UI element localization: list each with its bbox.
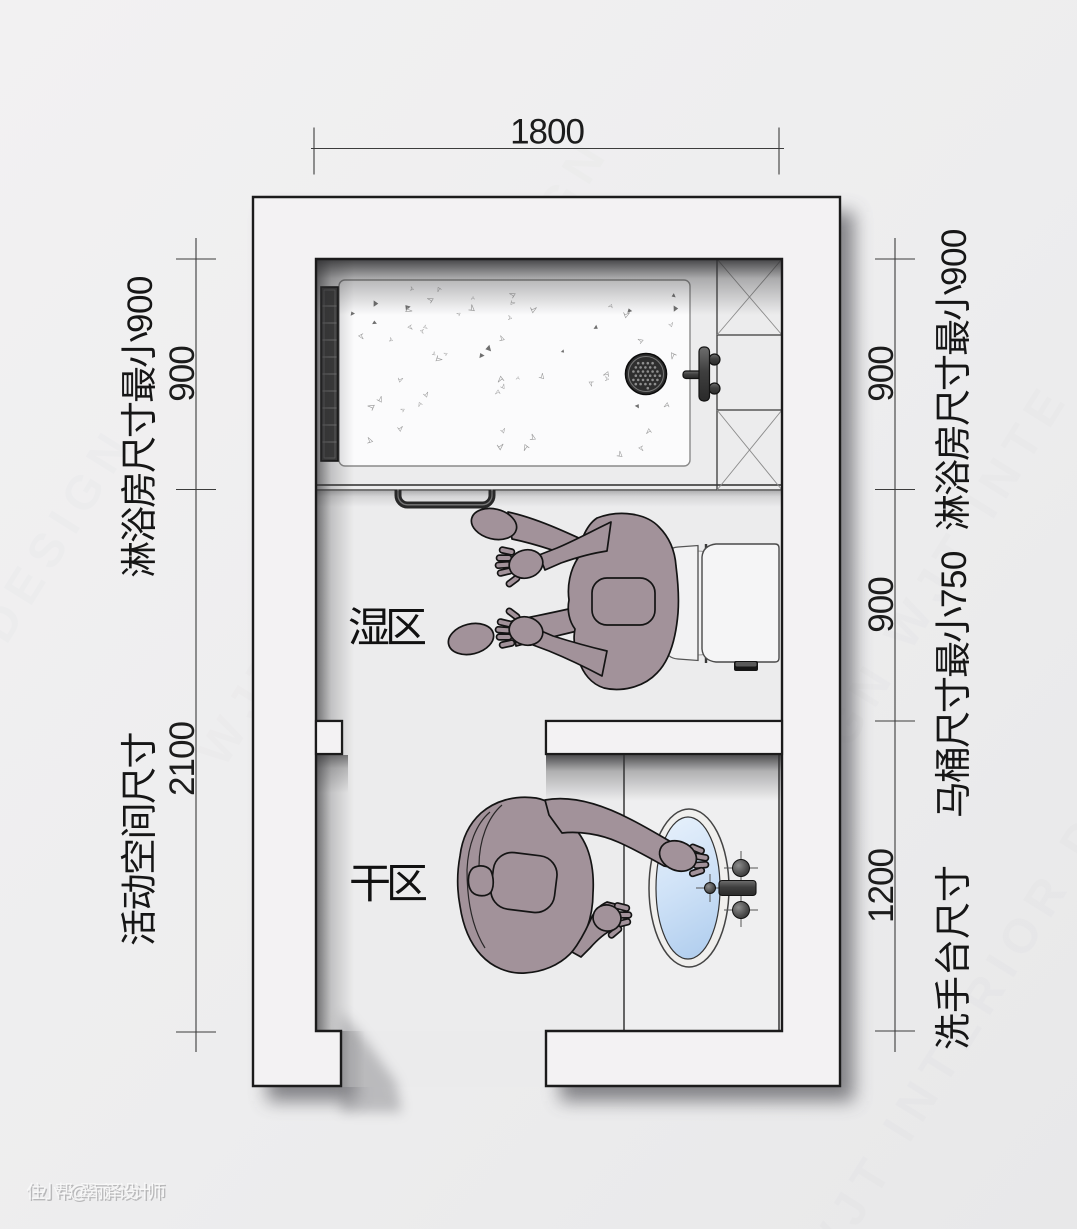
svg-text:2100: 2100 xyxy=(163,722,202,796)
svg-text:900: 900 xyxy=(862,577,901,633)
svg-text:丽: 丽 xyxy=(94,1182,112,1202)
svg-text:750: 750 xyxy=(935,551,974,608)
svg-text:900: 900 xyxy=(935,229,974,286)
svg-text:900: 900 xyxy=(121,276,160,333)
svg-text:900: 900 xyxy=(163,346,202,402)
svg-text:1800: 1800 xyxy=(510,113,584,152)
svg-text:@: @ xyxy=(70,1182,88,1202)
svg-text:900: 900 xyxy=(862,346,901,402)
svg-text:1200: 1200 xyxy=(862,849,901,923)
